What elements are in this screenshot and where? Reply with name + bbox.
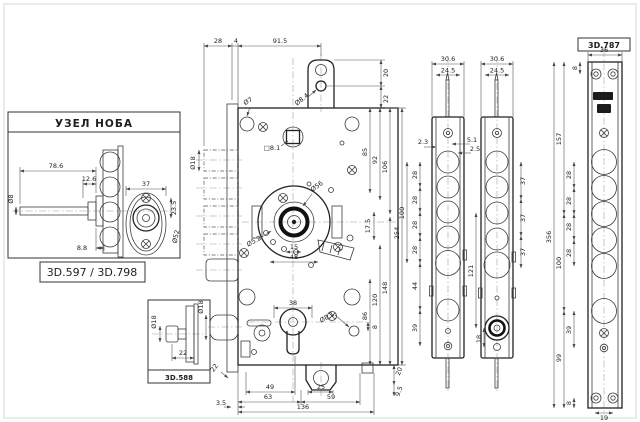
knob-box-title: УЗЕЛ НОБА [55,118,133,130]
dim-s-19: 19 [600,414,608,422]
cam-assembly [252,186,354,260]
dim-s-8-bottom: 8 [565,401,573,405]
deadbolts-phantom [204,150,238,255]
dim-85: 85 [361,148,369,156]
dim-b-37-2: 37 [519,214,527,222]
dim-b-37-3: 37 [519,248,527,256]
dim-a-pitch-4: 28 [411,246,419,254]
knob-code-label: 3D.597 / 3D.798 [47,266,138,279]
dim-s-157: 157 [555,133,563,145]
dim-tab-22: 22 [382,95,390,103]
dim-63: 63 [264,393,272,401]
dim-a-pitch-3: 28 [411,221,419,229]
strike-plate-view: 3D.787 36 8 28 28 28 28 157 100 99 356 3… [545,38,630,422]
dim-b-18: 18 [475,335,483,343]
dim-8: 8 [371,325,379,329]
dim-25: 25 [317,383,325,391]
dim-a-pitch-2: 28 [411,196,419,204]
dim-plate-width: 37 [142,180,150,188]
dim-86: 86 [361,312,369,320]
dim-cam-dia: Ø56 [309,179,325,193]
dim-offset: 12.6 [82,175,96,183]
deviator-strip-b: 30.6 24.5 37 37 37 121 18 [467,55,527,392]
dim-a-2-5: 2.5 [470,145,480,153]
dim-a-30-6: 30.6 [441,55,455,63]
brand-emblem [597,104,611,113]
dim-s-pitch-1: 28 [565,171,573,179]
knob-side-view [20,146,123,257]
dim-49: 49 [266,383,274,391]
dim-17-5: 17.5 [364,219,372,233]
knob-detail-box: УЗЕЛ НОБА 78.6 12.6 8.8 Ø8 37 23.5 Ø52 [7,112,181,282]
dim-a-24-5: 24.5 [441,67,455,75]
dim-s-pitch-4: 28 [565,249,573,257]
dim-bolt-dia: Ø18 [189,156,197,169]
dim-106: 106 [381,161,389,173]
dim-pin-hole: Ø5.2 [245,234,262,249]
dim-a-2-3: 2.3 [418,138,428,146]
dim-s-pitch-3: 28 [565,223,573,231]
dim-s-36: 36 [600,46,608,54]
dim-a-100: 100 [398,207,406,219]
dim-latch-dia: Ø18 [197,300,205,313]
dim-b-30-6: 30.6 [490,55,504,63]
dim-top-28: 28 [214,37,222,45]
dim-59: 59 [327,393,335,401]
dim-bottom-20: 20 [394,366,404,377]
knob-front-view [126,193,166,255]
dim-top-4: 4 [234,37,238,45]
euro-cylinder [241,309,359,357]
dim-92: 92 [371,156,379,164]
dim-spindle-square: □8.1 [264,144,280,152]
dim-120: 120 [371,294,379,306]
dim-b-37-1: 37 [519,177,527,185]
deviator-strip-a: 30.6 24.5 2.3 5.1 2.5 28 28 28 28 100 44… [398,55,480,392]
dim-a-5-1: 5.1 [467,136,477,144]
dim-s-pitch-2: 28 [565,197,573,205]
dim-screw-hole: Ø8.1 [318,310,335,325]
dim-shaft-dia: Ø8 [7,194,15,203]
technical-drawing-sheet: УЗЕЛ НОБА 78.6 12.6 8.8 Ø8 37 23.5 Ø52 [0,0,640,422]
dim-38: 38 [289,299,297,307]
dim-15: 15 [290,243,298,251]
dim-top-91-5: 91.5 [273,37,287,45]
dim-s-39: 39 [565,326,573,334]
dim-48: 48 [290,253,298,261]
lock-engineering-drawing: УЗЕЛ НОБА 78.6 12.6 8.8 Ø8 37 23.5 Ø52 [0,0,640,422]
lock-body-view: 28 4 91.5 Ø8.4 20 22 Ø7 □8.1 Ø18 Ø18 Ø56… [189,37,406,415]
dim-s-8-top: 8 [571,66,579,70]
dim-b-24-5: 24.5 [490,67,504,75]
dim-thumbturn-depth: 22 [179,349,187,357]
dim-9-5: 9.5 [394,385,405,397]
dim-shaft-length: 78.6 [49,162,63,170]
dim-254: 254 [393,227,401,239]
thumbturn-code-label: 3D.588 [165,374,193,382]
dim-136: 136 [297,403,309,411]
dim-3-5: 3.5 [216,399,226,407]
dim-tab-20: 20 [382,69,390,77]
dim-s-99: 99 [555,354,563,362]
dim-b-121: 121 [467,265,475,277]
dim-a-pitch-1: 28 [411,171,419,179]
faceplate [227,104,238,372]
dim-thumbturn-dia: Ø18 [150,315,158,328]
dim-a-44: 44 [411,282,419,290]
dim-hole-offset: 23.5 [170,201,178,215]
mottura-badge [593,92,613,100]
dim-148: 148 [381,282,389,294]
dim-s-356: 356 [545,231,553,243]
dim-a-39: 39 [411,324,419,332]
dim-tail: 8.8 [77,244,87,252]
latch-bolt [210,315,238,340]
dim-s-100: 100 [555,257,563,269]
dim-top-hole-dia: Ø7 [242,95,254,107]
